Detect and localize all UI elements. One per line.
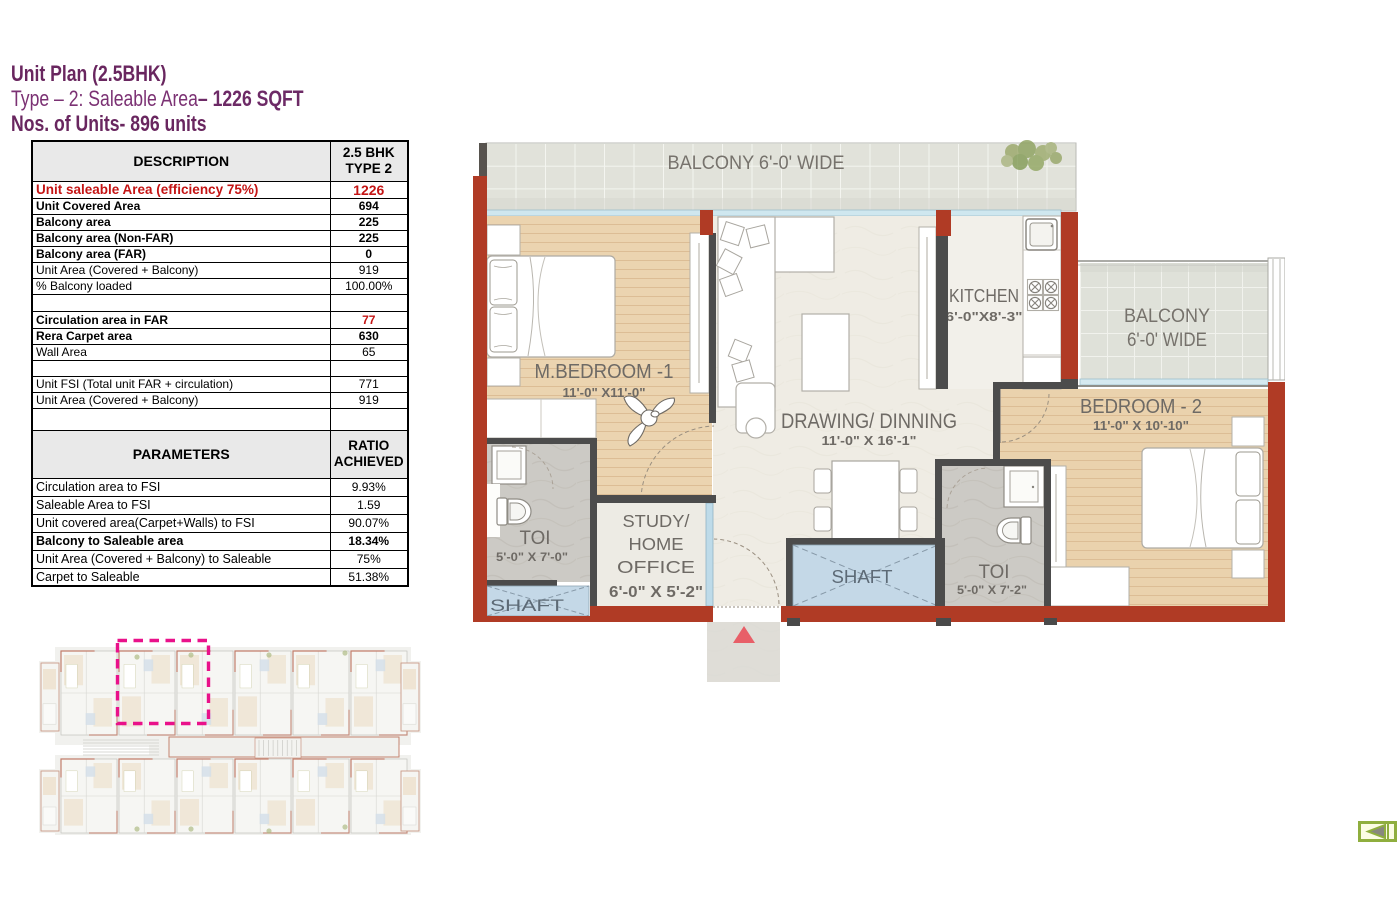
svg-text:SHAFT: SHAFT [490, 596, 564, 615]
svg-text:M.BEDROOM -1: M.BEDROOM -1 [535, 360, 674, 383]
svg-text:SHAFT: SHAFT [832, 566, 893, 587]
svg-text:STUDY/: STUDY/ [623, 511, 690, 531]
svg-text:BEDROOM - 2: BEDROOM - 2 [1080, 396, 1202, 418]
svg-text:11'-0" X 10'-10": 11'-0" X 10'-10" [1093, 418, 1189, 433]
svg-text:TOI: TOI [979, 562, 1010, 583]
svg-text:5'-0" X 7'-0": 5'-0" X 7'-0" [496, 550, 568, 564]
svg-text:6'-0"X8'-3": 6'-0"X8'-3" [946, 309, 1023, 324]
svg-text:DRAWING/ DINNING: DRAWING/ DINNING [781, 410, 957, 433]
svg-text:TOI: TOI [520, 528, 551, 549]
svg-text:11'-0" X11'-0": 11'-0" X11'-0" [563, 385, 646, 400]
svg-text:HOME: HOME [629, 534, 684, 554]
svg-text:6'-0" X 5'-2": 6'-0" X 5'-2" [609, 584, 703, 601]
svg-text:11'-0" X 16'-1": 11'-0" X 16'-1" [822, 433, 917, 448]
svg-text:OFFICE: OFFICE [617, 557, 695, 577]
svg-text:5'-0" X 7'-2": 5'-0" X 7'-2" [957, 583, 1027, 597]
svg-text:BALCONY 6'-0' WIDE: BALCONY 6'-0' WIDE [668, 153, 845, 174]
svg-text:KITCHEN: KITCHEN [949, 286, 1019, 306]
svg-text:6'-0' WIDE: 6'-0' WIDE [1127, 330, 1207, 351]
svg-text:BALCONY: BALCONY [1124, 306, 1210, 327]
